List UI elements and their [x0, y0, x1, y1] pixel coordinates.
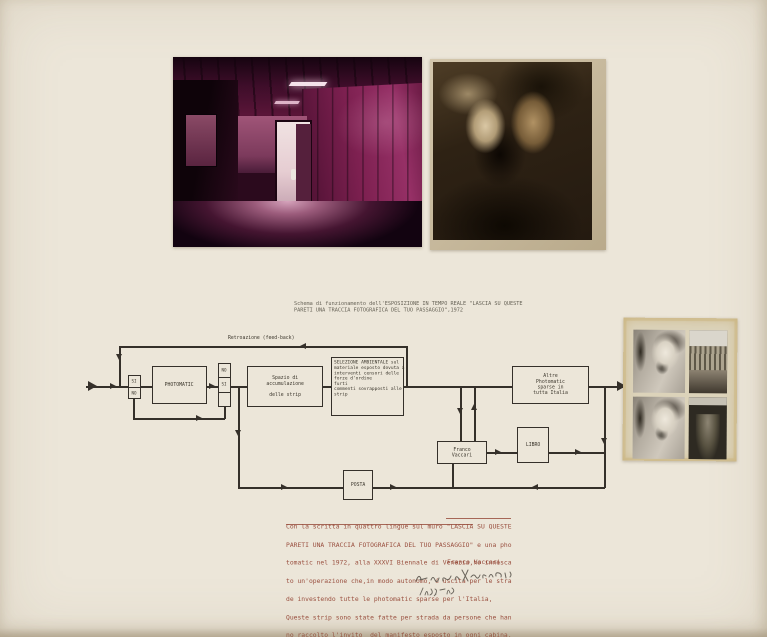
- tunnel-right-wall: [302, 82, 422, 214]
- gate-photomatic-no: NO: [219, 364, 230, 377]
- arch-opening: [695, 414, 720, 459]
- entry-arrow-2: [110, 383, 116, 389]
- tunnel-figure: [291, 169, 296, 180]
- bottom-arrow-1: [281, 484, 287, 490]
- feedback-arrow-left: [300, 343, 306, 349]
- loop-arrow: [196, 415, 202, 421]
- node-spazio: Spazio di accumulazione delle strip: [247, 366, 323, 407]
- node-spazio-label: Spazio di accumulazione delle strip: [266, 375, 304, 398]
- artwork-board: Schema di funzionamento dell'ESPOSIZIONE…: [0, 0, 767, 637]
- statement-underline-1: [446, 518, 511, 519]
- node-photomatic-label: PHOTOMATIC: [165, 382, 194, 388]
- monument-base: [689, 370, 727, 393]
- entry-arrow: [88, 381, 97, 391]
- node-posta-label: POSTA: [351, 482, 365, 488]
- couple-photograph-image: [433, 62, 592, 240]
- flow-line-loop-left: [133, 399, 135, 419]
- handwritten-signature: [412, 567, 522, 607]
- flow-line-gate1-photomatic: [141, 386, 152, 388]
- node-libro-label: LIBRO: [526, 442, 540, 448]
- tunnel-light-bar-2: [274, 101, 300, 104]
- gate-photomatic-no-label: NO: [222, 368, 227, 373]
- node-posta: POSTA: [343, 470, 373, 500]
- node-altre-photomatic: Altre Photomatic sparse in tutta Italia: [512, 366, 589, 404]
- node-franco-vaccari: Franco Vaccari: [437, 441, 487, 464]
- node-selezione-label: SELEZIONE AMBIENTALE sul materiale espos…: [334, 360, 438, 397]
- flow-line-vaccari-libro: [487, 452, 517, 454]
- flow-line-feedback-left: [119, 346, 121, 387]
- gate-entry: SI NO: [128, 375, 141, 399]
- node-altre-photomatic-label: Altre Photomatic sparse in tutta Italia: [533, 374, 569, 397]
- signature-date-path: [420, 588, 454, 596]
- gate-entry-no: NO: [129, 387, 140, 399]
- feedback-label: Retroazione (feed-back): [228, 335, 305, 340]
- tunnel-door-panel: [296, 124, 311, 202]
- node-selezione: SELEZIONE AMBIENTALE sul materiale espos…: [331, 357, 404, 416]
- flow-line-loop-right: [224, 407, 226, 419]
- node-libro: LIBRO: [517, 427, 549, 463]
- signature-name-path: [416, 570, 511, 582]
- statement-line: Queste strip sono state fatte per strada…: [286, 615, 512, 621]
- tunnel-photograph: [173, 57, 422, 247]
- flow-line-posta-branch: [238, 387, 240, 487]
- statement-line: PARETI UNA TRACCIA FOTOGRAFICA DEL TUO P…: [286, 542, 512, 548]
- libro-out-arrow: [575, 449, 581, 455]
- gate-photomatic-si-label: SI: [222, 383, 227, 388]
- flow-line-feedback-top: [119, 346, 408, 348]
- flow-line-selezione-altre: [404, 386, 512, 388]
- gate-photomatic: NO SI: [218, 363, 231, 407]
- gate-entry-si: SI: [129, 376, 140, 387]
- down-to-vaccari-arrow: [457, 408, 463, 414]
- feedback-arrow-down: [116, 354, 122, 360]
- strip-frame-woman-1: [633, 330, 685, 393]
- paper-bottom-edge: [0, 628, 767, 637]
- gate-photomatic-empty: [219, 392, 230, 406]
- tunnel-left-window: [185, 114, 217, 167]
- statement-signoff: Franco Vaccari: [447, 559, 501, 566]
- bottom-arrow-left: [532, 484, 538, 490]
- vaccari-libro-arrow: [495, 449, 501, 455]
- tunnel-light-bar: [289, 82, 328, 86]
- strip-frame-woman-2: [633, 397, 685, 459]
- flow-line-spazio-selezione: [323, 386, 331, 388]
- flow-line-loop-bottom: [133, 418, 225, 420]
- node-photomatic: PHOTOMATIC: [152, 366, 207, 404]
- photobooth-strip: [623, 318, 738, 462]
- arch-top-light: [689, 397, 727, 405]
- flow-line-up-from-vaccari: [474, 387, 476, 442]
- statement-line: Con la scritta in quattro lingue sul mur…: [286, 524, 512, 530]
- monument-sky: [689, 330, 727, 347]
- flow-line-bottom-left: [238, 487, 344, 489]
- flow-line-bottom-right: [372, 487, 605, 489]
- photomatic-out-arrow: [209, 383, 215, 389]
- flow-line-vaccari-bottom: [452, 464, 454, 488]
- bottom-arrow-2: [390, 484, 396, 490]
- monument-colonnade: [689, 346, 727, 370]
- posta-branch-arrow: [235, 430, 241, 436]
- up-from-vaccari-arrow: [471, 404, 477, 410]
- gate-entry-no-label: NO: [132, 391, 137, 396]
- right-return-arrow: [601, 438, 607, 444]
- statement-underline-2: [286, 524, 473, 525]
- signature-scribble: [412, 567, 522, 607]
- gate-photomatic-si: SI: [219, 377, 230, 391]
- strip-frame-arch: [689, 397, 727, 459]
- flow-line-down-to-vaccari: [460, 387, 462, 442]
- tunnel-floor: [173, 201, 422, 247]
- gate-entry-si-label: SI: [132, 379, 137, 384]
- strip-frame-monument: [689, 330, 727, 393]
- couple-photograph: [430, 59, 606, 250]
- exhibition-caption: Schema di funzionamento dell'ESPOSIZIONE…: [294, 301, 538, 314]
- node-franco-vaccari-label: Franco Vaccari: [450, 447, 473, 458]
